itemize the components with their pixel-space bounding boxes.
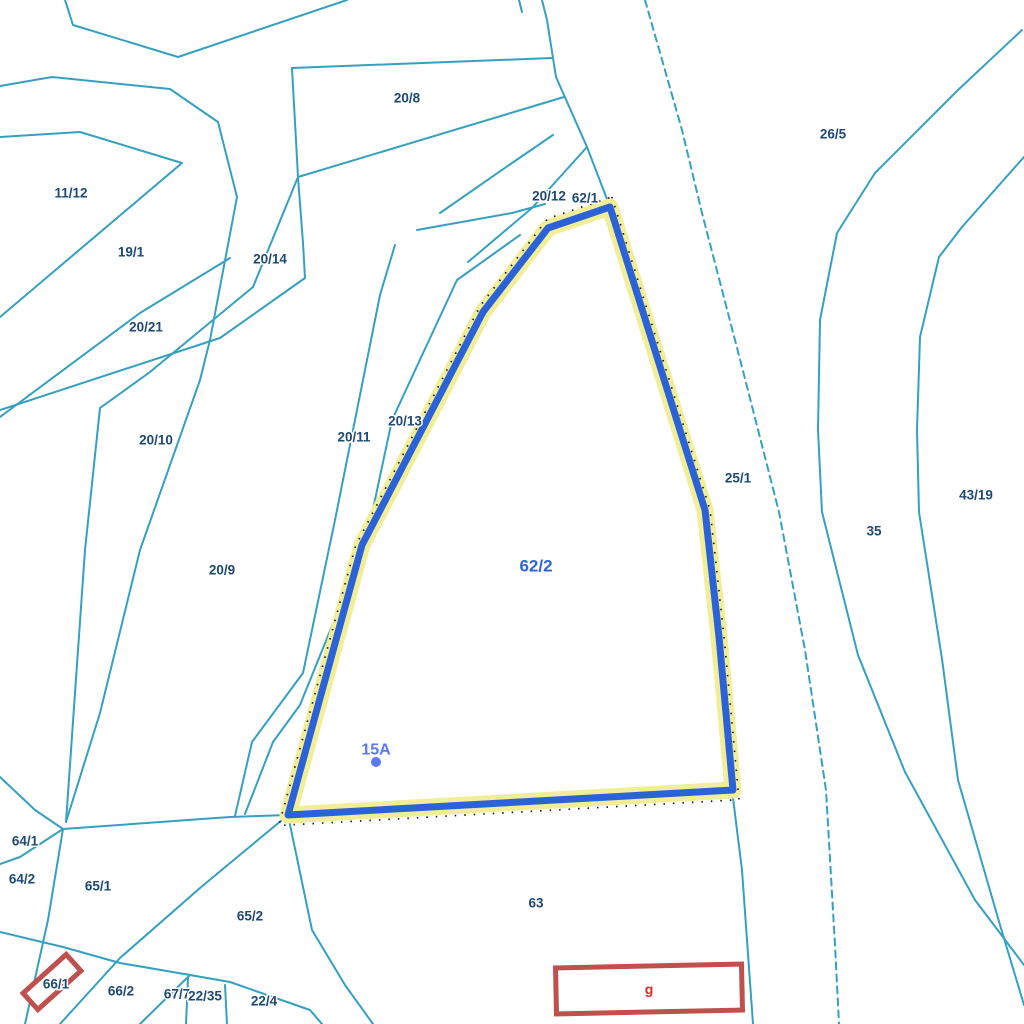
parcel-label-64-2: 64/2 bbox=[9, 872, 35, 887]
map-viewport[interactable]: g20/826/511/1219/120/1420/2120/1262/120/… bbox=[0, 0, 1024, 1024]
boundary-wedge-11-12 bbox=[0, 132, 182, 317]
parcel-label-20-14: 20/14 bbox=[253, 252, 287, 267]
building-g-label: g bbox=[645, 981, 654, 997]
parcel-label-22-35: 22/35 bbox=[188, 989, 222, 1004]
parcel-label-19-1: 19/1 bbox=[118, 245, 145, 260]
boundary-node-east bbox=[63, 815, 288, 829]
parcel-label-26-5: 26/5 bbox=[820, 127, 847, 142]
boundary-left-long-curve bbox=[0, 77, 237, 822]
address-point-dot[interactable] bbox=[371, 757, 381, 767]
boundary-p20-8-left bbox=[292, 68, 305, 278]
boundary-river-left-bank bbox=[818, 30, 1024, 965]
boundary-sep-65-2-63 bbox=[288, 815, 373, 1024]
boundary-top-stub bbox=[519, 0, 522, 12]
map-canvas[interactable]: g20/826/511/1219/120/1420/2120/1262/120/… bbox=[0, 0, 1024, 1024]
parcel-label-20-21: 20/21 bbox=[129, 320, 163, 335]
selected-parcel-halo bbox=[288, 207, 733, 815]
parcel-label-25-1: 25/1 bbox=[725, 471, 752, 486]
parcel-label-20-13: 20/13 bbox=[388, 414, 422, 429]
parcel-label-20-11: 20/11 bbox=[337, 430, 371, 445]
parcel-label-20-9: 20/9 bbox=[209, 563, 235, 578]
boundary-sep-22-35-22-4 bbox=[225, 985, 227, 1024]
boundary-p20-12-b bbox=[417, 204, 545, 230]
selected-parcel-label: 62/2 bbox=[519, 557, 552, 576]
parcel-label-22-4: 22/4 bbox=[251, 994, 278, 1009]
boundary-p20-8-top bbox=[292, 58, 552, 68]
boundary-river-right-bank bbox=[917, 157, 1024, 1005]
parcel-label-62-1: 62/1 bbox=[572, 191, 599, 206]
boundary-top-left-zigzag bbox=[65, 0, 347, 57]
parcel-label-35: 35 bbox=[866, 524, 882, 539]
parcel-label-43-19: 43/19 bbox=[959, 488, 993, 503]
parcel-label-64-1: 64/1 bbox=[12, 834, 39, 849]
boundary-road-left bbox=[542, 0, 610, 207]
selected-parcel-polygon[interactable] bbox=[288, 207, 733, 815]
parcel-label-63: 63 bbox=[528, 896, 544, 911]
parcel-label-20-10: 20/10 bbox=[139, 433, 173, 448]
parcel-label-65-1: 65/1 bbox=[85, 879, 112, 894]
parcel-label-67-7: 67/7 bbox=[164, 987, 190, 1002]
boundary-p20-8-bottom bbox=[298, 97, 564, 177]
parcel-label-65-2: 65/2 bbox=[237, 909, 263, 924]
parcel-label-66-2: 66/2 bbox=[108, 984, 134, 999]
boundary-sep-20-21 bbox=[0, 278, 305, 410]
parcel-label-20-12: 20/12 bbox=[532, 189, 566, 204]
parcel-label-66-1: 66/1 bbox=[43, 977, 70, 992]
address-point-label: 15A bbox=[361, 742, 391, 759]
parcel-label-20-8: 20/8 bbox=[394, 91, 421, 106]
parcel-label-11-12: 11/12 bbox=[54, 186, 87, 201]
boundary-node-west bbox=[0, 777, 63, 829]
